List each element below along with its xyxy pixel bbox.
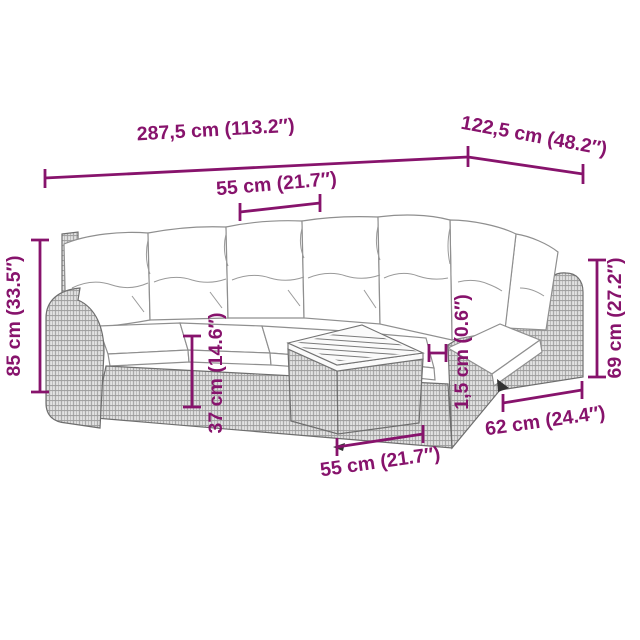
dim-total-height-label: 85 cm (33.5″) bbox=[3, 256, 25, 377]
dim-seat-width: 55 cm (21.7″) bbox=[215, 168, 337, 221]
dim-side-height: 69 cm (27.2″) bbox=[588, 258, 626, 379]
back-pillow-4 bbox=[302, 217, 380, 324]
dim-total-length-label: 287,5 cm (113.2″) bbox=[136, 115, 295, 146]
dim-return-length-label: 122,5 cm (48.2″) bbox=[459, 112, 609, 161]
dim-return-length: 122,5 cm (48.2″) bbox=[459, 112, 609, 184]
back-pillow-5 bbox=[378, 215, 452, 340]
dim-seat-height-label: 37 cm (14.6″) bbox=[205, 313, 227, 434]
back-pillow-3 bbox=[226, 221, 304, 318]
dim-total-height: 85 cm (33.5″) bbox=[3, 240, 49, 392]
table-right-face bbox=[337, 359, 423, 434]
product-dimension-diagram: 287,5 cm (113.2″) 122,5 cm (48.2″) 55 cm… bbox=[0, 0, 640, 640]
dim-tabletop-thickness-label: 1,5 cm (0.6″) bbox=[451, 294, 473, 410]
sofa-set-illustration: 287,5 cm (113.2″) 122,5 cm (48.2″) 55 cm… bbox=[0, 0, 640, 640]
back-pillow-2 bbox=[148, 227, 228, 320]
dim-side-height-label: 69 cm (27.2″) bbox=[604, 258, 626, 379]
